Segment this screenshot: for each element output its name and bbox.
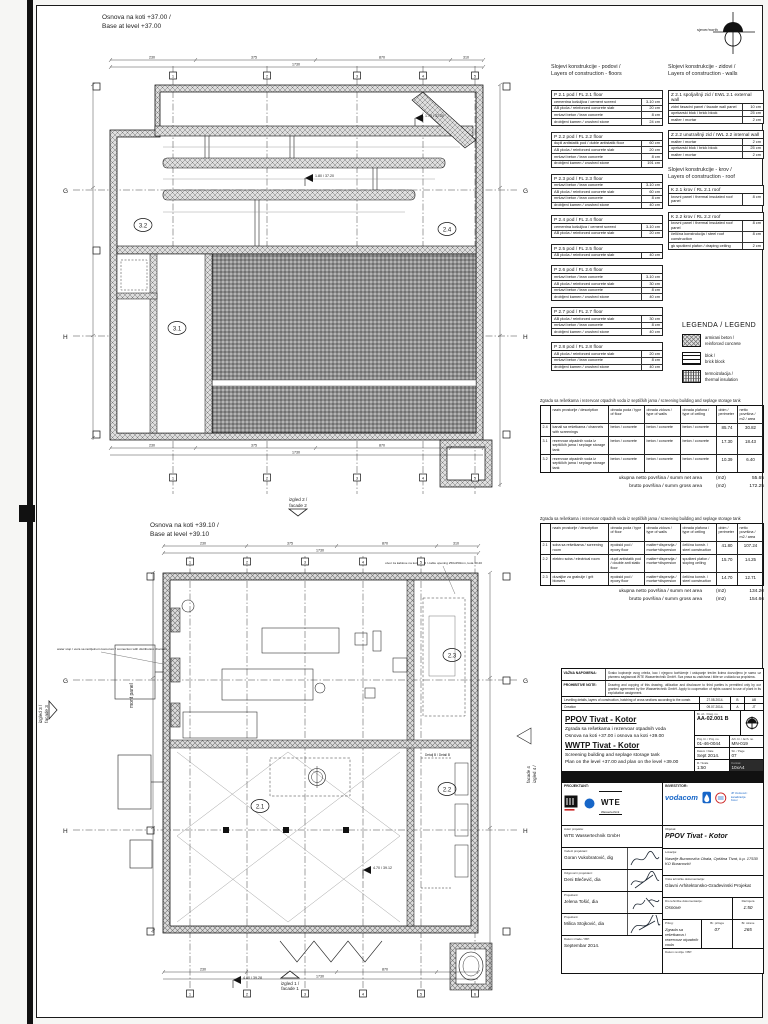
vik-kotor-label: JP Vodovod i kanalizacijaKotor (731, 792, 761, 802)
layer-name: mršavi beton / lean concrete (552, 288, 642, 294)
room-tag-2-2: 2.2 (443, 788, 452, 794)
layer-thickness: 40 cm (642, 294, 662, 300)
layer-thickness: 8 cm (642, 288, 662, 294)
designer-field: Autor projekta:WTE Wassertechnik GmbH (562, 826, 662, 847)
dwg-no-cell: Br. crt. / Dwg. no. AA-02.001 B (695, 711, 741, 735)
legend-label: blok /brick block (705, 353, 725, 363)
area-table-row: 2.3duvaljke za grabulje / grit blowersep… (541, 573, 763, 585)
room-tag-2-4: 2.4 (443, 228, 452, 234)
layer-table-title: K 2.1 krov / RL 2.1 roof (669, 186, 763, 194)
legend-item-insulation: termoizolacija /thermal insulation (682, 370, 762, 383)
designer-field-label: Datum izrade / IBP: (564, 937, 660, 941)
grid-label-g-left: G (63, 678, 68, 685)
subtitle-sr1: Zgrada sa rešetkama i rezervoar otpadnih… (565, 727, 691, 732)
area-cell: 14.25 (738, 555, 763, 572)
roof-header-en: Layers of construction - roof (668, 174, 764, 181)
layer-thickness: 20 cm (642, 351, 662, 357)
elevation-value: 1.80 / 37.20 (315, 174, 334, 178)
title-main-left: PPOV Tivat - Kotor Zgrada sa rešetkama i… (562, 711, 695, 771)
dwg-no-value: AA-02.001 B (697, 716, 738, 722)
layer-name: AB ploča / reinforced concrete slab (552, 231, 642, 237)
layer-table: K 2.1 krov / RL 2.1 roofkrovni panel / t… (668, 185, 764, 205)
facade-arrow-down-icon (288, 508, 308, 517)
investor-column: INVESTITOR: vodacom JP Vodovod i kanaliz… (663, 783, 763, 973)
title-block: VAŽNA NAPOMENA: Svako kopiranje ovog crt… (561, 668, 764, 974)
legend-label: armirani beton /reinforced concrete (705, 335, 741, 345)
note-label: PROHIBITIVE NOTE: (562, 681, 606, 696)
dim-value: 870 (379, 56, 385, 60)
layer-name: gk spušteni plafon / draping ceiling (669, 243, 743, 249)
br-strane-cell: Br. strane 265 (732, 920, 763, 948)
investor-header-label: INVESTITOR: (665, 784, 761, 788)
layer-name: drobljeni kamen / crushed stone (552, 203, 642, 209)
legend-item-brick: blok /brick block (682, 352, 762, 365)
grid-label-g-left: G (63, 188, 68, 195)
layer-table: Z 2.2 unutrašnji zid / IWL 2.2 internal … (668, 130, 764, 159)
format-value: 10xA4 (732, 765, 762, 770)
designer-field-row: Projektant:Milica Stojković, dia (562, 914, 662, 936)
grid-label-h-right: H (523, 828, 528, 835)
north-arrow-icon: sjever/north (693, 10, 765, 56)
br-strane-label: Br. strane (735, 921, 761, 925)
area-table-caption: Zgrada sa rešetkama i rezervoar otpadnih… (540, 516, 764, 521)
area-table-2: Zgrada sa rešetkama i rezervoar otpadnih… (540, 516, 764, 602)
page-value: 07 (732, 753, 762, 758)
area-total-unit: (m2) (716, 597, 738, 602)
layer-name: cementna košuljica / cement screed (552, 224, 642, 230)
razmjera-value: 1:50 (735, 905, 761, 910)
dim-value: 230 (149, 56, 155, 60)
layer-thickness: 8 cm (642, 358, 662, 364)
designer-field: Odgovorni projektant:Deni Blečević, dia (562, 870, 627, 891)
designer-field-value: Milica Stojković, dia (564, 921, 625, 926)
prilog-value: Zgrada sa rešetkama i rezervoar otpadnih… (665, 927, 699, 947)
layer-thickness: 3-10 cm (642, 224, 662, 230)
registration-mark (19, 505, 35, 522)
layer-table: P 2.4 pod / FL 2.4 floorcementna košulji… (551, 215, 663, 237)
layer-thickness: 60 cm (642, 189, 662, 195)
area-total: ukupna netto površina / summ net area(m2… (540, 476, 764, 481)
area-header-cell: obrada poda / type of floor (609, 524, 645, 541)
layer-thickness: 30 cm (642, 316, 662, 322)
layer-table-title: P 2.7 pod / FL 2.7 floor (552, 308, 662, 316)
layer-name: drobljeni kamen / crushed stone (552, 329, 642, 335)
revision-rows: Levelling details, layers of constructio… (562, 697, 763, 711)
area-cell: 10.39 (717, 455, 738, 472)
designer-field: Datum izrade / IBP:Septembar 2014. (562, 936, 662, 957)
layer-name: dupli antistatik pod / duble antistatik … (552, 141, 642, 147)
layer-thickness: 2 cm (743, 139, 763, 145)
br-priloga-cell: Br. priloga 07 (701, 920, 732, 948)
area-header-corner (541, 524, 551, 541)
area-header-cell: obrada poda / type of floor (609, 406, 645, 423)
plan1-title: Osnova na koti +37.00 / Base at level +3… (102, 14, 171, 32)
project-title-sr: PPOV Tivat - Kotor (565, 715, 691, 724)
area-cell: spušteni plafon / sloping ceiling (681, 555, 717, 572)
area-table-row: 3.2rezervoar otpadnih voda iz septičkih … (541, 455, 763, 472)
note-row-en: PROHIBITIVE NOTE: Drawing and copying of… (562, 681, 763, 697)
layer-table-title: Z 2.1 spoljašnji zid / EWL 2.1 external … (669, 91, 763, 104)
cau-logo (564, 795, 580, 812)
layer-thickness: 20 cm (642, 147, 662, 153)
layer-thickness: 30 cm (642, 281, 662, 287)
dim-value: 870 (379, 444, 385, 448)
area-cell: 107.24 (738, 542, 763, 554)
area-cell: 2.3 (541, 573, 551, 585)
area-total-label: ukupna netto površina / summ net area (619, 589, 702, 594)
dim-total: 1730 (292, 451, 300, 455)
area-cell: čelična konstr. / steel construction (681, 542, 717, 554)
layer-name: mršavi beton / lean concrete (552, 274, 642, 280)
vrsta-value: Glavni Arhitektonsko-Građevinski Projeka… (665, 883, 761, 888)
dim-value: 310 (453, 542, 459, 546)
lokacija-value: Naselje Buranovića Obala, Opština Tivat,… (665, 856, 761, 866)
dim-total: 1730 (316, 549, 324, 553)
layer-name: mršavi beton / lean concrete (552, 154, 642, 160)
layer-table-title: Z 2.2 unutrašnji zid / IWL 2.2 internal … (669, 131, 763, 139)
layer-name: mršavi beton / lean concrete (552, 196, 642, 202)
plot-icon-cell (741, 711, 763, 735)
dim-value: 375 (251, 444, 257, 448)
designer-header-label: PROJEKTANT: (564, 784, 660, 788)
area-total-label: ukupna netto površina / summ net area (619, 476, 702, 481)
br-strane-value: 265 (735, 927, 761, 932)
designer-field-value: Jelena Tošić, dia (564, 899, 625, 904)
layer-table-row: drobljeni kamen / crushed stone40 cm (552, 294, 662, 300)
designer-field-label: Autor projekta: (564, 827, 660, 831)
signature-cell (627, 848, 662, 869)
layer-thickness: 8 cm (642, 323, 662, 329)
room-tag-2-1: 2.1 (256, 805, 265, 811)
proj-no-cell: Proj. br. / Proj. no. 01-46-0044 (695, 736, 730, 747)
br-priloga-value: 07 (704, 927, 730, 932)
layer-name: drobljeni kamen / crushed stone (552, 119, 642, 125)
grid-label-g-right: G (523, 188, 528, 195)
area-cell: malter+disperzija / mortar+dispersion (645, 555, 681, 572)
layer-name: malter / mortar (669, 152, 743, 158)
page-cell: Str. / Page 07 (730, 748, 764, 759)
area-cell: beton / concrete (645, 455, 681, 472)
plan2-drawing: G G H H (55, 538, 540, 1008)
objekat-label: Objekat: (665, 827, 761, 831)
layer-thickness: 40 cm (642, 365, 662, 371)
layer-name: drobljeni kamen / crushed stone (552, 365, 642, 371)
walls-header-sr: Slojevi konstrukcije - zidovi / (668, 64, 764, 71)
arch-no-cell: Arh. br. / Arch. no. MN-019 (730, 736, 764, 747)
area-cell: 30.82 (738, 424, 763, 436)
vodacom-logo: vodacom (665, 793, 698, 802)
layer-table-title: P 2.8 pod / FL 2.8 floor (552, 343, 662, 351)
scale-format-row: R / Scale 1:50 Format 10xA4 (695, 760, 763, 771)
area-header-cell: naziv prostorije / description (551, 524, 609, 541)
signature-icon (629, 915, 661, 935)
area-total-unit: (m2) (716, 484, 738, 489)
area-cell: beton / concrete (645, 424, 681, 436)
plotter-icon (745, 716, 759, 730)
plan2-title: Osnova na koti +39.10 / Base at level +3… (150, 522, 219, 540)
area-header-cell: obrada plafona / type of ceiling (681, 406, 717, 423)
layer-name: mršavi beton / lean concrete (552, 183, 642, 189)
area-cell: rezervoar otpadnih voda iz septičkih jam… (551, 455, 609, 472)
area-table-row: 3.1rezervoar otpadnih voda iz septičkih … (541, 437, 763, 455)
layer-thickness: 8 cm (743, 232, 763, 242)
area-cell: beton / concrete (609, 437, 645, 454)
layer-thickness: 40 cm (642, 253, 662, 259)
proj-no-value: 01-46-0044 (697, 741, 727, 746)
elevation-value: 1.78 / 37.20 (425, 114, 444, 118)
area-table: naziv prostorije / descriptionobrada pod… (540, 523, 764, 586)
area-header-cell: netto površina / m2 / area (738, 406, 763, 423)
facade-arrow-up-icon (280, 970, 300, 979)
objekat-value: PPOV Tivat - Kotor (665, 833, 761, 840)
wte-logo: WTE Wassertechnik (599, 791, 622, 815)
area-total-value: 172.25 (738, 484, 764, 489)
layer-name: AB ploča / reinforced concrete slab (552, 351, 642, 357)
area-cell: 15.70 (717, 555, 738, 572)
area-total: brutto površina / summ gross area(m2)172… (540, 484, 764, 489)
legend-item-concrete: armirani beton /reinforced concrete (682, 334, 762, 347)
plan1-drawing: G G H H 3.2 3.1 2.4 1.80 / (55, 50, 540, 510)
area-cell: 6.40 (738, 455, 763, 472)
subtitle-sr2: Osnova na koti +37.00 i osnova na koti +… (565, 734, 691, 739)
revision-letter: B (731, 697, 745, 703)
subtitle-en2: Plan on the level +37.00 and plan on the… (565, 760, 691, 765)
arch-no-value: MN-019 (732, 741, 762, 746)
layer-name: opekarski blok / brick block (669, 146, 743, 152)
prilog-row: Prilog: Zgrada sa rešetkama i rezervoar … (663, 920, 763, 949)
layer-thickness: 20 cm (642, 106, 662, 112)
layer-table: P 2.2 pod / FL 2.2 floordupli antistatik… (551, 132, 663, 168)
layer-table: P 2.7 pod / FL 2.7 floorAB ploča / reinf… (551, 307, 663, 336)
layer-name: AB ploča / reinforced concrete slab (552, 281, 642, 287)
subtitle-en1: Screening building and seplage storage t… (565, 753, 691, 758)
area-cell: 85.74 (717, 424, 738, 436)
dio-label: Dio tehničke dokumentacije: (665, 899, 730, 903)
area-total-label: brutto površina / summ gross area (629, 484, 702, 489)
facade1-label-en: facade 1 (262, 986, 318, 992)
signature-cell (627, 914, 662, 935)
wall-roof-tables: Z 2.1 spoljašnji zid / EWL 2.1 external … (668, 90, 764, 256)
room-tag-2-3: 2.3 (448, 654, 457, 660)
layer-table: K 2.2 krov / RL 2.2 roofkrovni panel / t… (668, 212, 764, 250)
layer-table-row: drobljeni kamen / crushed stone40 cm (552, 329, 662, 335)
area-cell: beton / concrete (681, 424, 717, 436)
wall-layer-tables: Z 2.1 spoljašnji zid / EWL 2.1 external … (668, 90, 764, 165)
dio-value: Osnove (665, 905, 730, 910)
area-header-cell: netto površina / m2 / area (738, 524, 763, 541)
designer-field-label: Odgovorni projektant: (564, 871, 625, 875)
area-total-value: 154.66 (738, 597, 764, 602)
layer-name: AB ploča / reinforced concrete slab (552, 147, 642, 153)
lokacija-label: Lokacija: (665, 850, 761, 854)
designer-field-row: Datum izrade / IBP:Septembar 2014. (562, 936, 662, 957)
layer-thickness: 8 cm (642, 112, 662, 118)
area-header-cell: obrada zidova / type of walls (645, 524, 681, 541)
area-cell: 41.80 (717, 542, 738, 554)
area-table-row: 2.4kanali sa rešetkama / channels with s… (541, 424, 763, 437)
walls-header: Slojevi konstrukcije - zidovi / Layers o… (668, 64, 764, 78)
area-cell: 2.1 (541, 542, 551, 554)
revision-date: 09.07.2014. (700, 704, 731, 710)
area-cell: 14.70 (717, 573, 738, 585)
area-cell: kanali sa rešetkama / channels with scre… (551, 424, 609, 436)
floors-header: Slojevi konstrukcije - podovi / Layers o… (551, 64, 663, 78)
layer-thickness: 25 cm (743, 111, 763, 117)
layer-name: malter / mortar (669, 139, 743, 145)
designer-field-row: Vodeći projektant:Goran Vukobratović, di… (562, 848, 662, 870)
separator-band (562, 772, 763, 783)
elevation-value: 4.80 / 39.28 (243, 976, 262, 980)
designer-field-value: Deni Blečević, dia (564, 877, 625, 882)
revision-row: Creation09.07.2014.AJT (562, 704, 763, 711)
signature-cell (627, 870, 662, 891)
layer-name: cementna košuljica / cement screed (552, 99, 642, 105)
layer-table-row: drobljeni kamen / crushed stone191 cm (552, 161, 662, 167)
area-cell: epoksid pod / epoxy floor (609, 573, 645, 585)
designer-fields: Autor projekta:WTE Wassertechnik GmbHVod… (562, 826, 662, 957)
grid-label-g-right: G (523, 678, 528, 685)
facade4-label-en: facade 4 (526, 766, 531, 783)
revision-row: Levelling details, layers of constructio… (562, 697, 763, 704)
drawing-sheet: { "sheet": {"north_label": "sjever/north… (0, 0, 768, 1024)
area-cell: malter+disperzija / mortar+dispersion (645, 573, 681, 585)
dim-value: 230 (200, 968, 206, 972)
walls-header-en: Layers of construction - walls (668, 71, 764, 78)
floors-header-en: Layers of construction - floors (551, 71, 663, 78)
area-table-header: naziv prostorije / descriptionobrada pod… (541, 524, 763, 542)
roof-layer-tables: K 2.1 krov / RL 2.1 roofkrovni panel / t… (668, 185, 764, 256)
layer-thickness: 2 cm (743, 152, 763, 158)
layer-name: malter / mortar (669, 117, 743, 123)
facade2-marker: izgled 2 / facade 2 (270, 497, 326, 519)
dim-value: 230 (149, 444, 155, 448)
area-table-row: 2.1soba sa rešetkama / screening roomepo… (541, 542, 763, 555)
roof-header: Slojevi konstrukcije - krov / Layers of … (668, 167, 764, 181)
revision-desc: Creation (562, 704, 700, 710)
layer-thickness: 25 cm (743, 146, 763, 152)
grid-label-h-left: H (63, 828, 68, 835)
layer-table-row: drobljeni kamen / crushed stone40 cm (552, 365, 662, 371)
layer-name: opekarski blok / brick block (669, 111, 743, 117)
layer-table-row: drobljeni kamen / crushed stone24 cm (552, 119, 662, 125)
layer-table-row: AB ploča / reinforced concrete slab40 cm (552, 253, 662, 259)
area-total-label: brutto površina / summ gross area (629, 597, 702, 602)
layer-thickness: 191 cm (642, 161, 662, 167)
layer-thickness: 60 cm (642, 141, 662, 147)
layer-thickness: 24 cm (642, 119, 662, 125)
layer-name: zidni fasadni panel / facade wall panel (669, 104, 743, 110)
layer-thickness: 40 cm (642, 203, 662, 209)
layer-thickness: 3-10 cm (642, 99, 662, 105)
layer-name: AB ploča / reinforced concrete slab (552, 106, 642, 112)
mont-panel-label: mont panel (129, 683, 135, 708)
designer-field: Vodeći projektant:Goran Vukobratović, di… (562, 848, 627, 869)
dim-total: 1730 (292, 63, 300, 67)
layer-thickness: 2 cm (743, 117, 763, 123)
date-value: Sept 2014. (697, 753, 727, 758)
layer-table: P 2.1 pod / FL 2.1 floorcementna košulji… (551, 90, 663, 126)
layer-table-row: čelična konstrukcija / steel roof constr… (669, 232, 763, 243)
layer-table-row: AB ploča / reinforced concrete slab20 cm (552, 231, 662, 237)
prilog-label: Prilog: (665, 921, 699, 925)
elevation-value: 4.70 / 39.12 (373, 866, 392, 870)
plan1-title-en: Base at level +37.00 (102, 23, 171, 32)
revision-by: AB (745, 697, 763, 703)
designer-logos: WTE Wassertechnik (564, 791, 660, 815)
designer-column: PROJEKTANT: WTE Wassertechnik Autor proj… (562, 783, 663, 973)
area-header-cell: obim / perimeter (717, 406, 738, 423)
layer-table-row: drobljeni kamen / crushed stone40 cm (552, 203, 662, 209)
dim-value: 375 (251, 56, 257, 60)
dim-value: 310 (463, 56, 469, 60)
designer-field-value: Septembar 2014. (564, 943, 660, 948)
area-table: naziv prostorije / descriptionobrada pod… (540, 405, 764, 473)
area-header-cell: obrada zidova / type of walls (645, 406, 681, 423)
area-cell: beton / concrete (609, 424, 645, 436)
layer-name: drobljeni kamen / crushed stone (552, 294, 642, 300)
layer-thickness: 3-10 cm (642, 183, 662, 189)
layer-thickness: 8 cm (642, 196, 662, 202)
area-header-cell: obrada plafona / type of ceiling (681, 524, 717, 541)
floors-header-sr: Slojevi konstrukcije - podovi / (551, 64, 663, 71)
grid-label-h-right: H (523, 334, 528, 341)
legend: LEGENDA / LEGEND armirani beton /reinfor… (682, 322, 762, 383)
signature-cell (627, 892, 662, 913)
dim-value: 230 (200, 542, 206, 546)
layer-name: mršavi beton / lean concrete (552, 112, 642, 118)
dim-value: 870 (382, 968, 388, 972)
layer-name: AB ploča / reinforced concrete slab (552, 316, 642, 322)
proj-arch-row: Proj. br. / Proj. no. 01-46-0044 Arh. br… (695, 736, 763, 748)
area-total-value: 55.65 (738, 476, 764, 481)
brick-hatch-swatch (682, 352, 701, 365)
signature-icon (629, 849, 661, 869)
title-main-right: Br. crt. / Dwg. no. AA-02.001 B Proj. br… (695, 711, 763, 771)
layer-table: P 2.8 pod / FL 2.8 floorAB ploča / reinf… (551, 342, 663, 371)
signature-icon (629, 871, 661, 891)
layer-name: mršavi beton / lean concrete (552, 358, 642, 364)
water-drop-badge (702, 791, 712, 804)
layer-table: P 2.6 pod / FL 2.6 floormršavi beton / l… (551, 265, 663, 301)
area-table-header: naziv prostorije / descriptionobrada pod… (541, 406, 763, 424)
designer-field-row: Odgovorni projektant:Deni Blečević, dia (562, 870, 662, 892)
layer-table-row: mršavi beton / lean concrete3-10 cm (552, 274, 662, 281)
area-cell: 2.4 (541, 424, 551, 436)
area-table-row: 2.2elektro soba / electrical roomdupli a… (541, 555, 763, 573)
area-cell: beton / concrete (609, 455, 645, 472)
layer-thickness: 8 cm (743, 221, 763, 231)
vrsta-label: Vrsta tehničke dokumentacije: (665, 877, 761, 881)
facade4-label: izgled 4 / (532, 765, 537, 783)
annotation-water-stop: water stop / veza sa razdjelnom komorom … (57, 647, 167, 651)
layer-table-row: malter / mortar2 cm (669, 117, 763, 123)
annotation-cable-opening: otvor za kablove na koti 40.20 / cable o… (385, 561, 482, 565)
signature-icon (629, 893, 661, 913)
layer-name: krovni panel / thermal insulated roof pa… (669, 194, 743, 204)
datum-revizije-label: Datum revizije / IBP: (665, 950, 761, 954)
layer-table-row: gk spušteni plafon / draping ceiling2 cm (669, 243, 763, 249)
investor-header: INVESTITOR: vodacom JP Vodovod i kanaliz… (663, 783, 763, 826)
area-cell: beton / concrete (681, 437, 717, 454)
objekat-row: Objekat: PPOV Tivat - Kotor (663, 826, 763, 849)
area-cell: beton / concrete (645, 437, 681, 454)
plan2-title-sr: Osnova na koti +39.10 / (150, 522, 219, 531)
note-text: Drawing and copying of this drawing, uti… (606, 681, 763, 696)
area-total: brutto površina / summ gross area(m2)154… (540, 597, 764, 602)
area-header-cell: obim / perimeter (717, 524, 738, 541)
designer-field-row: Projektant:Jelena Tošić, dia (562, 892, 662, 914)
area-cell: 3.1 (541, 437, 551, 454)
